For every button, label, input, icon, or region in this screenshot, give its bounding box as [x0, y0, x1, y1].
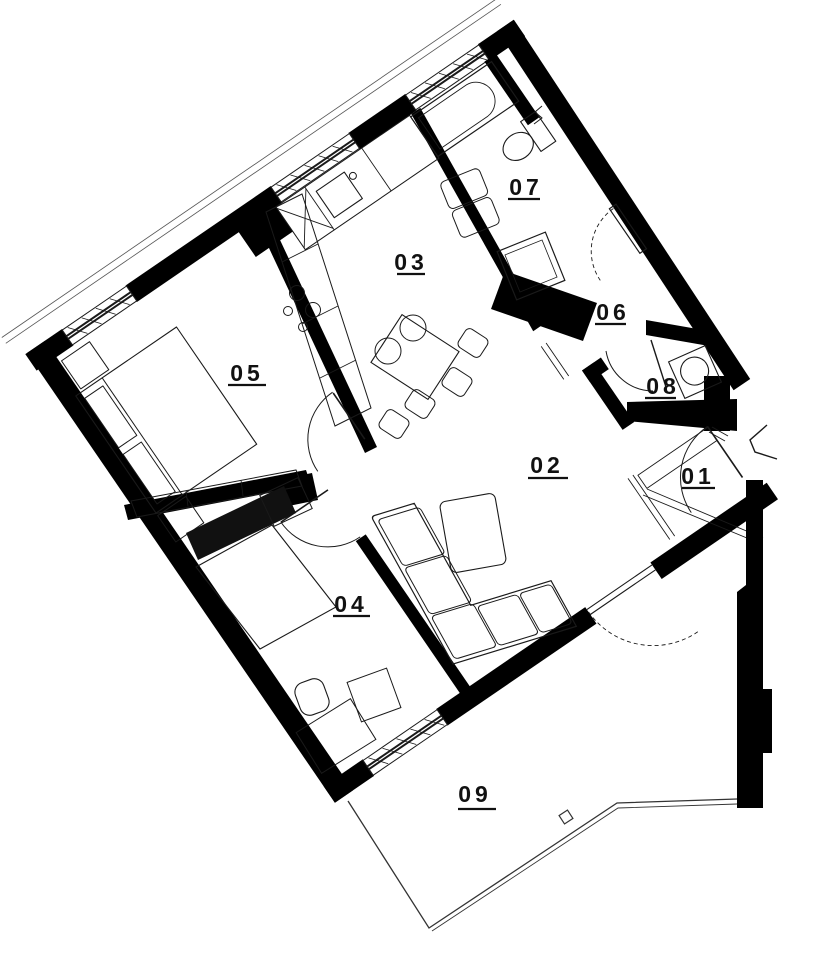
svg-text:04: 04 — [334, 591, 368, 617]
svg-text:07: 07 — [509, 174, 543, 200]
svg-text:03: 03 — [394, 249, 428, 275]
svg-text:02: 02 — [530, 452, 564, 478]
svg-text:09: 09 — [458, 781, 492, 807]
svg-text:08: 08 — [646, 373, 680, 399]
svg-text:06: 06 — [596, 299, 630, 325]
svg-text:01: 01 — [681, 463, 715, 489]
svg-text:05: 05 — [230, 360, 264, 386]
